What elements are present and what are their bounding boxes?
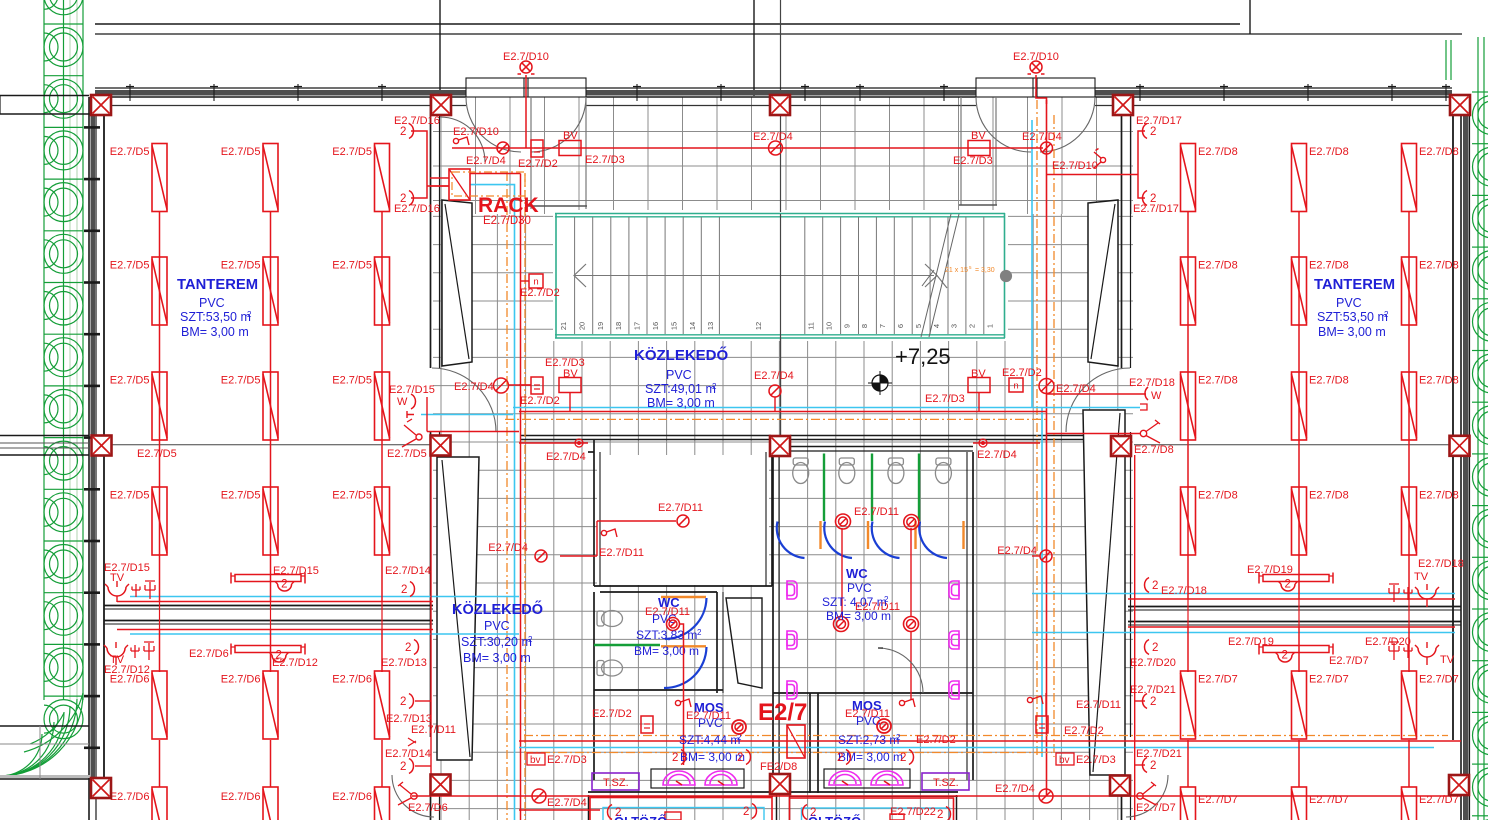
svg-text:10: 10: [824, 322, 833, 330]
svg-text:2: 2: [937, 809, 943, 820]
svg-text:E2.7/D6: E2.7/D6: [408, 802, 448, 814]
svg-text:KÖZLEKEDŐ: KÖZLEKEDŐ: [452, 600, 543, 618]
svg-text:E2.7/D18: E2.7/D18: [1129, 377, 1175, 389]
svg-text:E2.7/D16: E2.7/D16: [394, 203, 440, 215]
svg-text:2: 2: [405, 642, 411, 654]
svg-text:E2.7/D8: E2.7/D8: [1198, 375, 1238, 387]
svg-text:SZT:30,20 m: SZT:30,20 m: [461, 635, 532, 649]
svg-text:E2.7/D13: E2.7/D13: [386, 713, 432, 725]
svg-text:+7,25: +7,25: [895, 344, 951, 369]
svg-text:SZT:3,83 m: SZT:3,83 m: [636, 628, 697, 642]
svg-text:E2.7/D4: E2.7/D4: [454, 381, 494, 393]
svg-text:6: 6: [896, 324, 905, 328]
svg-text:RACK: RACK: [478, 194, 539, 217]
svg-text:E2.7/D5: E2.7/D5: [332, 146, 372, 158]
svg-text:E2.7/D10: E2.7/D10: [453, 126, 499, 138]
svg-text:2: 2: [281, 579, 287, 591]
svg-text:KÖZLEKEDŐ: KÖZLEKEDŐ: [634, 346, 729, 364]
svg-text:E2.7/D14: E2.7/D14: [385, 748, 431, 760]
svg-text:15: 15: [669, 322, 678, 330]
svg-text:BV: BV: [971, 368, 986, 380]
svg-text:E2/7: E2/7: [758, 699, 807, 726]
svg-text:E2.7/D30: E2.7/D30: [483, 215, 531, 227]
svg-text:E2.7/D6: E2.7/D6: [189, 648, 229, 660]
svg-text:E2.7/D4: E2.7/D4: [546, 451, 586, 463]
svg-text:E2.7/D8: E2.7/D8: [1198, 260, 1238, 272]
svg-text:E2.7/D7: E2.7/D7: [1136, 802, 1176, 814]
svg-text:2: 2: [528, 635, 533, 644]
svg-text:21: 21: [559, 322, 568, 330]
svg-text:E2.7/D2: E2.7/D2: [520, 395, 560, 407]
svg-text:E2.7/D4: E2.7/D4: [997, 545, 1037, 557]
svg-text:E2.7/D2: E2.7/D2: [518, 158, 558, 170]
svg-text:E2.7/D5: E2.7/D5: [387, 448, 427, 460]
svg-text:E2.7/D4: E2.7/D4: [754, 370, 794, 382]
svg-text:W: W: [1151, 390, 1162, 402]
svg-text:E2.7/D11: E2.7/D11: [599, 547, 644, 559]
svg-text:16: 16: [651, 322, 660, 330]
svg-text:PVC: PVC: [1336, 296, 1362, 310]
svg-text:bv: bv: [1059, 755, 1070, 766]
svg-text:2: 2: [400, 696, 406, 708]
svg-text:BV: BV: [971, 130, 986, 142]
svg-text:E2.7/D4: E2.7/D4: [1056, 383, 1096, 395]
svg-text:PVC: PVC: [698, 716, 723, 730]
svg-text:E2.7/D21: E2.7/D21: [1136, 748, 1182, 760]
svg-text:SZT:4,44 m: SZT:4,44 m: [679, 733, 740, 747]
svg-text:BM= 3,00 m: BM= 3,00 m: [463, 651, 531, 665]
svg-text:BM= 3,00 m: BM= 3,00 m: [838, 750, 903, 764]
svg-text:E2.7/D6: E2.7/D6: [221, 791, 261, 803]
svg-text:SZT: 4,07 m: SZT: 4,07 m: [822, 595, 887, 609]
svg-text:WC: WC: [846, 566, 868, 581]
svg-text:TANTEREM: TANTEREM: [1314, 277, 1395, 293]
svg-text:E2.7/D8: E2.7/D8: [1419, 260, 1459, 272]
svg-text:E2.7/D11: E2.7/D11: [658, 502, 703, 514]
svg-text:E2.7/D17: E2.7/D17: [1133, 203, 1179, 215]
svg-text:2: 2: [247, 310, 252, 319]
svg-text:E2.7/D6: E2.7/D6: [221, 674, 261, 686]
svg-text:19: 19: [596, 322, 605, 330]
svg-text:1: 1: [986, 324, 995, 328]
svg-text:2: 2: [737, 752, 743, 764]
svg-text:E2.7/D22: E2.7/D22: [890, 806, 936, 818]
svg-text:2: 2: [1150, 760, 1156, 772]
svg-text:9: 9: [842, 324, 851, 328]
svg-text:SZT:53,50 m: SZT:53,50 m: [1317, 310, 1388, 324]
svg-text:E2.7/D12: E2.7/D12: [104, 664, 150, 676]
svg-text:2: 2: [1384, 310, 1389, 319]
svg-text:E2.7/D10: E2.7/D10: [503, 51, 549, 63]
svg-text:PVC: PVC: [199, 296, 225, 310]
svg-text:E2.7/D5: E2.7/D5: [221, 490, 261, 502]
svg-text:E2.7/D12: E2.7/D12: [272, 657, 318, 669]
svg-text:BM= 3,00 m: BM= 3,00 m: [826, 609, 891, 623]
svg-text:E2.7/D6: E2.7/D6: [332, 791, 372, 803]
svg-text:= 3,30: = 3,30: [973, 267, 995, 274]
svg-text:E2.7/D2: E2.7/D2: [592, 708, 632, 720]
svg-text:BM= 3,00 m: BM= 3,00 m: [181, 325, 249, 339]
svg-text:E2.7/D8: E2.7/D8: [1419, 375, 1459, 387]
svg-text:14: 14: [688, 322, 697, 330]
svg-text:E2.7/D8: E2.7/D8: [1419, 490, 1459, 502]
svg-text:E2.7/D4: E2.7/D4: [547, 797, 587, 809]
svg-text:E2.7/D14: E2.7/D14: [385, 565, 431, 577]
svg-text:E2.7/D3: E2.7/D3: [1076, 754, 1116, 766]
svg-text:BM= 3,00 m: BM= 3,00 m: [647, 396, 715, 410]
svg-text:E2.7/D21: E2.7/D21: [1130, 684, 1176, 696]
svg-text:E2.7/D3: E2.7/D3: [925, 393, 965, 405]
svg-text:BM= 3,00 m: BM= 3,00 m: [1318, 325, 1386, 339]
svg-text:PVC: PVC: [847, 581, 872, 595]
svg-text:T.SZ.: T.SZ.: [603, 777, 629, 789]
svg-text:2: 2: [1285, 579, 1291, 591]
svg-text:n: n: [1013, 381, 1018, 392]
svg-text:E2.7/D5: E2.7/D5: [221, 375, 261, 387]
svg-text:E2.7/D7: E2.7/D7: [1309, 794, 1349, 806]
svg-text:W: W: [397, 396, 408, 408]
svg-text:E2.7/D7: E2.7/D7: [1309, 674, 1349, 686]
svg-text:13: 13: [706, 322, 715, 330]
svg-text:E2.7/D4: E2.7/D4: [977, 449, 1017, 461]
svg-text:E2.7/D5: E2.7/D5: [110, 146, 150, 158]
svg-text:20: 20: [577, 322, 586, 330]
svg-text:E2.7/D5: E2.7/D5: [110, 490, 150, 502]
svg-text:E2.7/D8: E2.7/D8: [1309, 490, 1349, 502]
svg-text:E2.7/D5: E2.7/D5: [332, 490, 372, 502]
svg-text:n: n: [533, 277, 538, 288]
svg-text:2: 2: [712, 382, 717, 391]
svg-text:E2.7/D8: E2.7/D8: [1198, 146, 1238, 158]
svg-text:E2.7/D7: E2.7/D7: [1198, 674, 1238, 686]
svg-text:E2.7/D8: E2.7/D8: [1198, 490, 1238, 502]
svg-text:2: 2: [1152, 642, 1158, 654]
svg-text:FE2/D8: FE2/D8: [760, 761, 797, 773]
svg-text:21 x 15: 21 x 15: [945, 267, 968, 274]
svg-text:E2.7/D2: E2.7/D2: [1002, 367, 1042, 379]
svg-text:BM= 3,00 m: BM= 3,00 m: [634, 644, 699, 658]
svg-text:E2.7/D3: E2.7/D3: [547, 754, 587, 766]
svg-text:E2.7/D5: E2.7/D5: [137, 448, 177, 460]
svg-text:E2.7/D17: E2.7/D17: [1136, 115, 1182, 127]
svg-text:E2.7/D5: E2.7/D5: [110, 260, 150, 272]
svg-text:E2.7/D5: E2.7/D5: [332, 260, 372, 272]
svg-text:E2.7/D11: E2.7/D11: [1076, 699, 1121, 711]
svg-text:2: 2: [743, 806, 749, 818]
svg-text:E2.7/D18: E2.7/D18: [1161, 585, 1207, 597]
svg-text:E2.7/D5: E2.7/D5: [110, 375, 150, 387]
svg-text:E2.7/D3: E2.7/D3: [545, 357, 585, 369]
svg-text:TV: TV: [1440, 654, 1455, 666]
svg-text:2: 2: [1282, 650, 1288, 662]
svg-text:18: 18: [614, 322, 623, 330]
svg-text:E2.7/D4: E2.7/D4: [995, 783, 1035, 795]
svg-text:E2.7/D10: E2.7/D10: [1052, 160, 1098, 172]
svg-text:bv: bv: [530, 755, 541, 766]
svg-text:E2.7/D8: E2.7/D8: [1309, 260, 1349, 272]
svg-text:E2.7/D8: E2.7/D8: [1309, 146, 1349, 158]
svg-text:E2.7/D6: E2.7/D6: [110, 791, 150, 803]
svg-text:E2.7/D18: E2.7/D18: [1418, 558, 1464, 570]
svg-text:E2.7/D8: E2.7/D8: [1134, 444, 1174, 456]
svg-text:E2.7/D8: E2.7/D8: [1309, 375, 1349, 387]
svg-text:11: 11: [807, 322, 816, 330]
svg-text:E2.7/D20: E2.7/D20: [1130, 657, 1176, 669]
svg-text:T.SZ.: T.SZ.: [933, 777, 959, 789]
svg-text:2: 2: [672, 752, 678, 764]
svg-text:E2.7/D10: E2.7/D10: [1013, 51, 1059, 63]
svg-text:PVC: PVC: [666, 368, 692, 382]
svg-text:E2.7/D8: E2.7/D8: [1419, 146, 1459, 158]
svg-text:3: 3: [950, 324, 959, 328]
svg-text:TV: TV: [1414, 571, 1429, 583]
svg-text:BM= 3,00 m: BM= 3,00 m: [680, 750, 745, 764]
svg-text:12: 12: [754, 322, 763, 330]
svg-text:E2.7/D7: E2.7/D7: [1198, 794, 1238, 806]
svg-text:7: 7: [878, 324, 887, 328]
svg-text:E2.7/D5: E2.7/D5: [221, 260, 261, 272]
svg-text:2: 2: [900, 752, 906, 764]
svg-text:2: 2: [401, 584, 407, 596]
svg-text:E2.7/D2: E2.7/D2: [916, 734, 956, 746]
svg-text:E2.7/D5: E2.7/D5: [332, 375, 372, 387]
svg-text:PVC: PVC: [484, 619, 510, 633]
svg-text:E2.7/D2: E2.7/D2: [1064, 725, 1104, 737]
svg-text:4: 4: [932, 324, 941, 328]
svg-text:E2.7/D7: E2.7/D7: [1419, 674, 1459, 686]
svg-text:E2.7/D6: E2.7/D6: [332, 674, 372, 686]
svg-text:2: 2: [837, 752, 843, 764]
svg-text:2: 2: [400, 126, 406, 138]
svg-text:SZT:2,73 m: SZT:2,73 m: [838, 733, 899, 747]
svg-text:E2.7/D2: E2.7/D2: [520, 287, 560, 299]
svg-text:8: 8: [860, 324, 869, 328]
svg-text:2: 2: [1150, 126, 1156, 138]
svg-text:2: 2: [697, 628, 702, 637]
svg-text:TANTEREM: TANTEREM: [177, 277, 258, 293]
svg-text:ÖLTÖZŐ: ÖLTÖZŐ: [808, 814, 861, 820]
svg-text:5: 5: [914, 324, 923, 328]
svg-text:E2.7/D4: E2.7/D4: [753, 131, 793, 143]
svg-text:2: 2: [968, 324, 977, 328]
svg-text:E2.7/D7: E2.7/D7: [1329, 655, 1369, 667]
svg-text:E2.7/D5: E2.7/D5: [221, 146, 261, 158]
svg-text:E2.7/D4: E2.7/D4: [466, 155, 506, 167]
svg-text:E2.7/D11: E2.7/D11: [411, 724, 456, 736]
svg-text:E2.7/D3: E2.7/D3: [585, 154, 625, 166]
svg-text:E2.7/D4: E2.7/D4: [1022, 131, 1062, 143]
svg-text:ÖLTÖZŐ: ÖLTÖZŐ: [614, 814, 667, 820]
svg-text:2: 2: [400, 761, 406, 773]
svg-text:E2.7/D20: E2.7/D20: [1365, 636, 1411, 648]
svg-text:2: 2: [1152, 580, 1158, 592]
svg-text:E2.7/D13: E2.7/D13: [381, 657, 427, 669]
svg-text:E2.7/D4: E2.7/D4: [488, 542, 528, 554]
svg-text:E2.7/D3: E2.7/D3: [953, 155, 993, 167]
svg-text:17: 17: [633, 322, 642, 330]
svg-text:SZT:49,01 m: SZT:49,01 m: [645, 382, 716, 396]
svg-text:BV: BV: [563, 368, 578, 380]
svg-text:E2.7/D11: E2.7/D11: [854, 506, 899, 518]
svg-text:BV: BV: [563, 130, 578, 142]
svg-text:2: 2: [884, 595, 889, 604]
svg-text:SZT:53,50 m: SZT:53,50 m: [180, 310, 251, 324]
svg-text:2: 2: [896, 733, 901, 742]
svg-text:2: 2: [1150, 696, 1156, 708]
